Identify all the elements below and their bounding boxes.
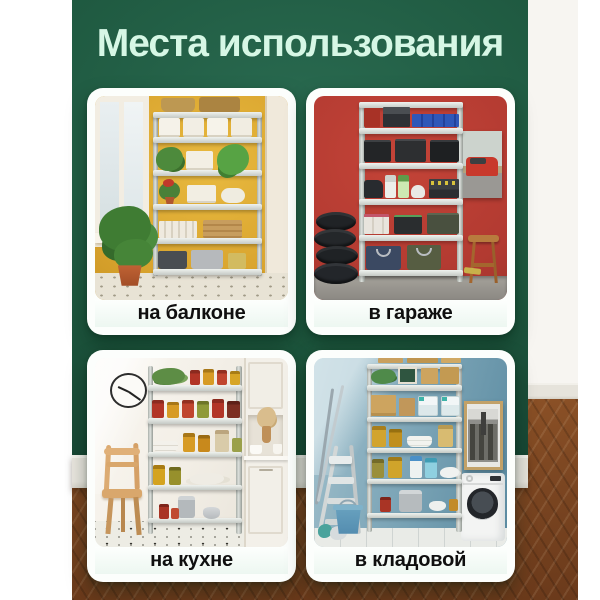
cardboard-box	[441, 358, 460, 363]
tool-case	[395, 139, 426, 162]
yellow-item	[228, 253, 245, 269]
silver-bowl	[203, 507, 220, 518]
kitchen-photo	[95, 358, 288, 547]
round-box	[221, 188, 244, 203]
shelf-board	[153, 204, 262, 210]
jar-yellow	[198, 435, 210, 452]
jar-yellow	[183, 433, 196, 452]
tire	[316, 212, 357, 230]
fabric-bin-dark	[158, 251, 187, 269]
tool-case	[430, 140, 459, 162]
washer-display	[490, 476, 502, 481]
balcony-side-wall	[265, 96, 288, 300]
towel-rolls	[440, 467, 458, 478]
shelf-board	[359, 199, 462, 205]
book-stack	[159, 221, 198, 237]
jar-red	[159, 504, 170, 518]
washer-door	[467, 488, 498, 519]
shelf-board	[153, 269, 262, 275]
flower-pot-small	[164, 197, 175, 204]
jar-olive	[372, 459, 385, 478]
kraft-box	[440, 367, 458, 384]
jar-tall-beige	[215, 430, 229, 452]
shelf-board	[148, 418, 242, 423]
shelf-board	[153, 112, 262, 118]
storage-box	[187, 185, 216, 203]
cabinet-lower-door	[248, 466, 283, 534]
jar-yellow	[153, 465, 166, 485]
jar-red	[217, 370, 228, 385]
shelf-board	[359, 102, 462, 108]
jar-pickles	[169, 467, 181, 485]
shelf-board	[148, 485, 242, 490]
shelf-board	[153, 238, 262, 244]
jar-olive	[197, 401, 209, 418]
usage-card-garage: в гараже	[306, 88, 515, 335]
jar-red	[380, 497, 392, 512]
potted-plant	[156, 147, 183, 171]
ladder-step	[328, 477, 353, 484]
side-baseboard	[528, 383, 578, 399]
organizer-bits	[431, 181, 457, 185]
jar-yellow	[388, 457, 402, 478]
wicker-basket	[161, 98, 196, 112]
cabinet-handle	[259, 469, 273, 471]
stock-pot	[399, 490, 422, 512]
storage-box	[159, 118, 180, 136]
counter-edge	[244, 456, 288, 460]
washer-panel-line	[463, 483, 504, 485]
kraft-box-small	[399, 398, 415, 416]
cabinet-upper-door	[248, 362, 283, 409]
metal-canister	[178, 496, 195, 518]
shelf-board	[359, 270, 462, 276]
usage-card-pantry: в кладовой	[306, 350, 515, 582]
cardboard-box	[378, 358, 403, 363]
paper-roll	[411, 185, 425, 198]
white-bowl	[429, 501, 446, 511]
tool-bin-red	[364, 108, 379, 126]
paint-cans	[364, 214, 389, 233]
storage-box	[186, 151, 213, 170]
usage-caption-kitchen: на кухне	[95, 547, 288, 574]
shelf-board	[367, 479, 462, 484]
jar-red	[182, 400, 195, 419]
floor-plant-lower	[114, 239, 153, 270]
small-frame	[398, 367, 417, 384]
shelf-board	[153, 137, 262, 143]
shelf-board	[359, 163, 462, 169]
flower-vase	[262, 426, 271, 443]
pantry-photo	[314, 358, 507, 547]
storage-box	[183, 118, 204, 136]
poster-canvas: Места использования	[0, 0, 600, 600]
poster-title: Места использования	[0, 24, 600, 65]
shelf-board	[359, 235, 462, 241]
jar-dark-red	[227, 401, 240, 419]
red-flowers	[163, 179, 175, 187]
usage-caption-balcony: на балконе	[95, 300, 288, 327]
shelf-board	[148, 452, 242, 457]
stool-crossbar	[473, 263, 494, 266]
shelf-board	[367, 385, 462, 390]
power-drill	[364, 180, 382, 198]
tool-block	[383, 107, 410, 126]
ladder-platform	[329, 456, 351, 464]
wooden-crate	[203, 220, 242, 237]
jar-small-green	[232, 438, 242, 451]
chair-leg	[121, 498, 125, 532]
detergent-bottle	[410, 456, 423, 478]
jar-yellow	[167, 402, 179, 418]
jar-red	[152, 400, 165, 419]
bin-latch	[419, 397, 424, 401]
spray-bottle-green	[398, 175, 409, 198]
detergent-bottle-teal	[425, 458, 437, 478]
washer-knob	[466, 475, 474, 481]
tire	[314, 263, 358, 283]
wicker-basket	[199, 97, 240, 112]
jar-red-small	[171, 508, 179, 518]
usage-caption-pantry: в кладовой	[314, 547, 507, 574]
garage-photo	[314, 96, 507, 300]
spray-bottle-white	[385, 175, 396, 198]
shelf-board	[359, 128, 462, 134]
jar-red	[212, 399, 225, 419]
usage-caption-garage: в гараже	[314, 300, 507, 327]
blue-organizers	[412, 114, 458, 126]
white-cup	[250, 445, 262, 454]
jar-yellow	[230, 371, 240, 385]
bucket-rim	[333, 505, 363, 510]
shelf-board	[153, 170, 262, 176]
usage-card-balcony: на балконе	[87, 88, 296, 335]
kraft-box	[371, 395, 396, 416]
tool-case	[364, 140, 391, 162]
cardboard-box	[407, 358, 438, 363]
jar-small-yellow	[449, 499, 458, 511]
shelf-board	[367, 448, 462, 453]
jar-yellow	[203, 369, 214, 385]
storage-box	[207, 118, 228, 136]
bowl-stack	[407, 436, 432, 446]
fabric-bin-gray	[191, 250, 224, 269]
storage-crate-dark	[427, 213, 459, 233]
white-cup	[273, 444, 283, 454]
storage-box	[231, 118, 252, 136]
garlic-cluster	[190, 473, 225, 484]
shelf-board	[367, 513, 462, 518]
poster-car-window	[470, 158, 485, 164]
stool-seat	[468, 235, 499, 242]
city-spire	[481, 412, 486, 435]
usage-card-kitchen: на кухне	[87, 350, 296, 582]
jar-red	[190, 370, 201, 385]
balcony-photo	[95, 96, 288, 300]
toolbox	[394, 215, 422, 233]
jar-yellow-small	[389, 429, 402, 447]
jar-yellow	[372, 426, 386, 447]
wall-clock	[110, 373, 147, 408]
chair-mid-rail	[106, 462, 139, 467]
chair-top-rail	[104, 448, 141, 455]
jar-beige	[438, 425, 453, 447]
bin-latch	[442, 397, 447, 401]
bowl-stack	[153, 441, 178, 451]
kraft-box	[421, 368, 437, 384]
shelf-board	[148, 385, 242, 390]
shelf-board	[367, 417, 462, 422]
